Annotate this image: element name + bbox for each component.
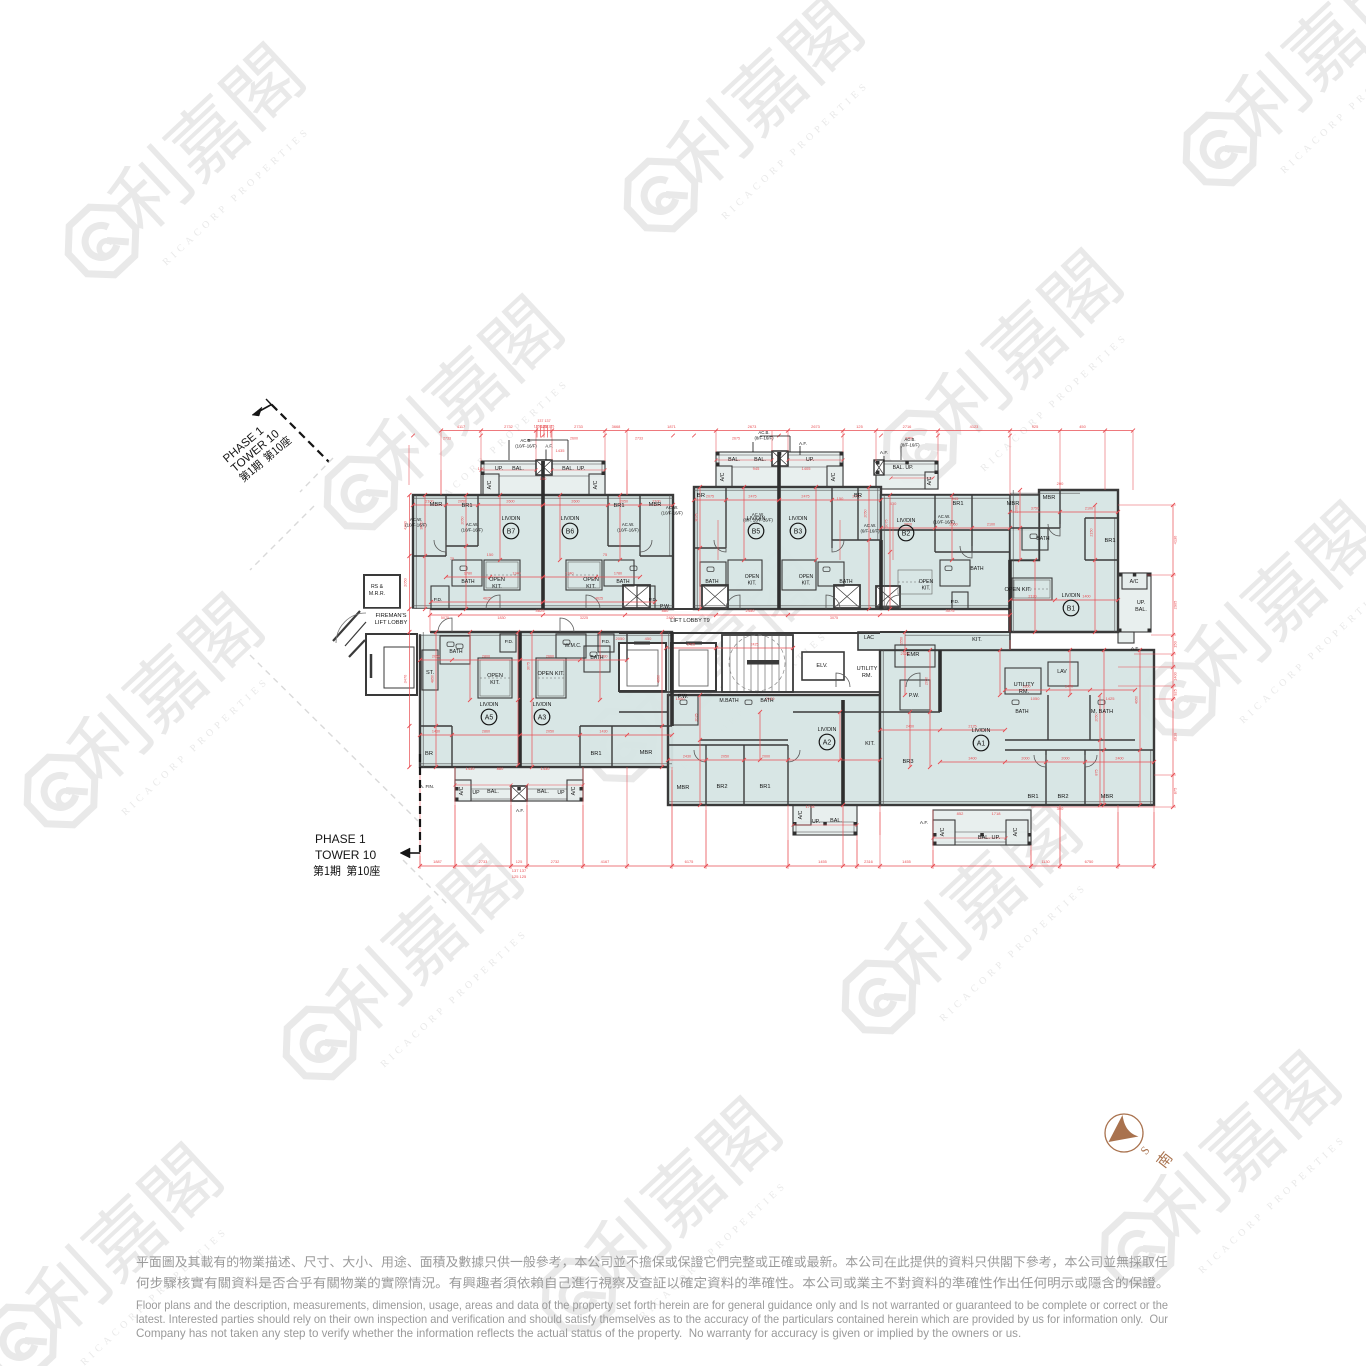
svg-text:(6/F-16/F): (6/F-16/F)	[860, 529, 880, 534]
svg-text:300: 300	[1057, 806, 1064, 811]
svg-text:137 137: 137 137	[537, 419, 550, 423]
svg-text:4117: 4117	[457, 424, 465, 429]
svg-text:P.D.: P.D.	[951, 599, 960, 605]
svg-text:BATH: BATH	[839, 579, 853, 585]
svg-text:P.W.: P.W.	[678, 694, 688, 700]
svg-text:ST.: ST.	[426, 670, 435, 676]
svg-text:AC.B.: AC.B.	[904, 437, 915, 442]
svg-text:B2: B2	[902, 531, 911, 538]
svg-text:1718: 1718	[806, 804, 816, 809]
svg-text:MBR: MBR	[1101, 794, 1114, 800]
svg-text:BR: BR	[697, 493, 705, 499]
svg-text:A.F.: A.F.	[920, 820, 928, 826]
svg-text:880: 880	[497, 766, 504, 771]
svg-text:2600: 2600	[571, 500, 579, 504]
svg-text:1780: 1780	[614, 572, 622, 576]
svg-text:BATH: BATH	[760, 698, 774, 704]
svg-text:150: 150	[837, 496, 844, 501]
svg-text:1050: 1050	[1031, 696, 1041, 701]
svg-text:2733: 2733	[443, 437, 451, 441]
svg-text:125: 125	[856, 424, 863, 429]
svg-text:1830: 1830	[497, 616, 505, 620]
svg-text:1400: 1400	[1082, 595, 1090, 599]
svg-text:6750: 6750	[1085, 859, 1094, 864]
svg-text:1435: 1435	[556, 448, 566, 453]
svg-text:200: 200	[1057, 481, 1064, 486]
svg-text:BAL.: BAL.	[728, 457, 740, 463]
svg-text:4950: 4950	[1134, 696, 1138, 704]
svg-text:BAL.: BAL.	[487, 789, 499, 795]
svg-text:1130: 1130	[1041, 859, 1050, 864]
svg-text:1430: 1430	[466, 766, 476, 771]
svg-text:4625: 4625	[483, 597, 491, 601]
svg-text:3470: 3470	[402, 674, 407, 683]
svg-text:UP.: UP.	[806, 457, 814, 463]
svg-text:2100: 2100	[1085, 507, 1093, 511]
svg-text:2430: 2430	[683, 755, 691, 759]
svg-text:UP.: UP.	[1137, 600, 1145, 606]
svg-text:A/C: A/C	[720, 472, 726, 481]
svg-text:125 125 125: 125 125 125	[534, 425, 555, 429]
svg-text:450: 450	[645, 636, 652, 641]
svg-text:A. FIN.: A. FIN.	[420, 784, 434, 789]
svg-text:BAL.: BAL.	[537, 789, 549, 795]
svg-text:4167: 4167	[601, 859, 610, 864]
svg-text:A/C: A/C	[593, 480, 599, 489]
svg-text:(10/F-16/F): (10/F-16/F)	[661, 511, 683, 516]
svg-text:1400: 1400	[1173, 671, 1178, 680]
svg-text:1425: 1425	[1106, 696, 1116, 701]
svg-text:137 137: 137 137	[512, 868, 527, 873]
svg-text:BR2: BR2	[1057, 794, 1068, 800]
svg-text:A.F.: A.F.	[545, 444, 552, 449]
svg-text:LIV/DIN: LIV/DIN	[897, 518, 916, 524]
svg-text:2316: 2316	[864, 859, 873, 864]
svg-text:2673: 2673	[748, 424, 757, 429]
svg-text:450: 450	[1079, 424, 1086, 429]
svg-text:2905: 2905	[1173, 601, 1178, 610]
svg-text:UP: UP	[472, 790, 480, 796]
svg-text:BAL.: BAL.	[512, 466, 524, 472]
svg-text:2050: 2050	[616, 636, 626, 641]
svg-text:2716: 2716	[903, 424, 912, 429]
svg-text:3668: 3668	[612, 424, 621, 429]
svg-text:LIV/DIN: LIV/DIN	[480, 702, 499, 708]
svg-text:LIV/DIN: LIV/DIN	[818, 727, 837, 733]
svg-text:925: 925	[1032, 424, 1039, 429]
svg-text:1405: 1405	[802, 466, 812, 471]
svg-text:P.D.: P.D.	[434, 597, 443, 603]
svg-text:BATH: BATH	[705, 579, 719, 585]
svg-text:BATH: BATH	[1015, 709, 1029, 715]
svg-text:3075: 3075	[884, 519, 888, 527]
svg-text:OPEN: OPEN	[799, 574, 814, 580]
svg-text:AC.W.: AC.W.	[466, 522, 478, 527]
svg-text:OPEN: OPEN	[489, 577, 505, 583]
svg-text:1455: 1455	[902, 859, 911, 864]
svg-text:2660: 2660	[546, 655, 554, 659]
svg-text:2475: 2475	[801, 495, 809, 499]
svg-text:OPEN KIT.: OPEN KIT.	[1004, 587, 1031, 593]
svg-text:430: 430	[890, 501, 897, 506]
svg-text:BAL.: BAL.	[830, 818, 842, 824]
svg-text:A5: A5	[485, 715, 494, 722]
svg-text:1455: 1455	[818, 859, 827, 864]
svg-text:MBR: MBR	[1043, 495, 1056, 501]
svg-text:4850: 4850	[656, 675, 660, 683]
svg-text:KIT.: KIT.	[586, 584, 596, 590]
svg-text:2130: 2130	[1028, 595, 1036, 599]
svg-text:AC.B.: AC.B.	[758, 430, 769, 435]
svg-text:BATH: BATH	[461, 579, 475, 585]
svg-text:A3: A3	[538, 715, 547, 722]
svg-text:1340: 1340	[565, 572, 573, 576]
svg-text:125: 125	[516, 859, 523, 864]
svg-text:P.D.: P.D.	[505, 639, 514, 645]
svg-text:(8/F-16/F): (8/F-16/F)	[900, 443, 920, 448]
svg-text:2425: 2425	[687, 643, 695, 647]
svg-text:(10/F-16/F): (10/F-16/F)	[617, 528, 639, 533]
svg-text:2050: 2050	[460, 516, 464, 524]
svg-text:2050: 2050	[721, 755, 729, 759]
svg-text:OPEN: OPEN	[919, 579, 934, 585]
svg-text:TOWER 10: TOWER 10	[315, 848, 376, 862]
svg-text:KIT.: KIT.	[748, 581, 757, 587]
svg-text:BR3: BR3	[902, 759, 913, 765]
svg-text:RS &: RS &	[371, 584, 384, 590]
svg-text:KIT.: KIT.	[972, 637, 982, 643]
svg-text:2100: 2100	[987, 523, 995, 527]
svg-text:1550: 1550	[900, 637, 904, 645]
svg-text:P.D.: P.D.	[602, 639, 611, 645]
svg-text:1430: 1430	[541, 766, 551, 771]
svg-text:KIT.: KIT.	[802, 581, 811, 587]
svg-text:PHASE 1: PHASE 1	[315, 832, 366, 846]
svg-text:OPEN KIT.: OPEN KIT.	[537, 671, 564, 677]
svg-text:BATH: BATH	[1036, 536, 1050, 542]
svg-text:A.F.: A.F.	[1131, 646, 1139, 652]
svg-text:2732: 2732	[504, 424, 513, 429]
svg-text:1871: 1871	[667, 424, 676, 429]
svg-text:150: 150	[1173, 640, 1178, 647]
svg-text:A/C: A/C	[459, 786, 465, 795]
svg-text:4625: 4625	[595, 597, 603, 601]
svg-text:B3: B3	[794, 529, 803, 536]
svg-text:2732: 2732	[551, 859, 560, 864]
svg-text:3618: 3618	[1173, 733, 1178, 742]
svg-text:KIT.: KIT.	[922, 586, 931, 592]
svg-text:1780: 1780	[464, 572, 472, 576]
svg-text:BR1: BR1	[1027, 794, 1038, 800]
svg-text:LIV/DIN: LIV/DIN	[972, 728, 991, 734]
svg-text:A/C: A/C	[1130, 579, 1139, 585]
svg-text:LAV: LAV	[1057, 669, 1067, 675]
svg-text:945: 945	[753, 466, 760, 471]
svg-text:AC.B.: AC.B.	[520, 438, 531, 443]
svg-text:2000: 2000	[924, 677, 928, 685]
svg-text:P.W.: P.W.	[660, 604, 670, 610]
svg-text:2050: 2050	[863, 509, 867, 517]
svg-text:3750: 3750	[1031, 507, 1039, 511]
svg-text:3025: 3025	[694, 513, 698, 521]
svg-text:BAL. UP.: BAL. UP.	[893, 465, 914, 471]
svg-text:1887: 1887	[433, 859, 442, 864]
svg-text:1430: 1430	[599, 730, 607, 734]
svg-text:KIT.: KIT.	[490, 680, 500, 686]
svg-text:M.BATH: M.BATH	[719, 698, 738, 704]
svg-text:UP.: UP.	[577, 466, 585, 472]
svg-text:LIFT LOBBY: LIFT LOBBY	[375, 620, 408, 626]
svg-text:925: 925	[1173, 689, 1178, 696]
svg-text:BR2: BR2	[716, 784, 727, 790]
svg-text:2025: 2025	[694, 713, 698, 721]
svg-text:UP: UP	[557, 790, 565, 796]
svg-text:S: S	[1137, 1143, 1152, 1157]
svg-text:LIV/DIN: LIV/DIN	[502, 516, 521, 522]
svg-text:B6: B6	[566, 529, 575, 536]
svg-text:A1: A1	[977, 741, 986, 748]
svg-text:125 125: 125 125	[512, 874, 527, 879]
svg-text:LIV/DIN: LIV/DIN	[1062, 593, 1081, 599]
svg-text:P.D.: P.D.	[649, 597, 658, 603]
svg-text:A/C: A/C	[927, 476, 933, 485]
svg-text:B5: B5	[752, 529, 761, 536]
svg-text:2000: 2000	[1061, 757, 1069, 761]
svg-text:2675: 2675	[732, 437, 740, 441]
svg-text:A/C: A/C	[1013, 827, 1019, 836]
svg-text:875: 875	[1094, 769, 1098, 775]
svg-text:(10/F-16/F): (10/F-16/F)	[461, 528, 483, 533]
svg-text:A/C: A/C	[571, 786, 577, 795]
svg-text:BATH: BATH	[970, 566, 984, 572]
svg-text:UP.: UP.	[495, 466, 503, 472]
svg-text:4625: 4625	[536, 608, 546, 613]
svg-text:A/C: A/C	[798, 810, 804, 819]
svg-text:2000: 2000	[762, 755, 770, 759]
svg-text:BR1: BR1	[759, 784, 770, 790]
svg-text:LIV/DIN: LIV/DIN	[561, 516, 580, 522]
svg-text:BAL.: BAL.	[1135, 607, 1147, 613]
svg-text:P.W.: P.W.	[909, 693, 919, 699]
svg-text:3400: 3400	[968, 757, 976, 761]
svg-text:UTILITY: UTILITY	[857, 666, 878, 672]
svg-text:1340: 1340	[512, 572, 520, 576]
svg-text:LIV/DIN: LIV/DIN	[533, 702, 552, 708]
svg-text:BR1: BR1	[461, 503, 472, 509]
svg-text:852: 852	[957, 811, 964, 816]
svg-text:LAC: LAC	[864, 635, 874, 641]
svg-text:4123: 4123	[970, 424, 979, 429]
svg-text:UTILITY: UTILITY	[1014, 682, 1035, 688]
svg-text:2600: 2600	[570, 437, 578, 441]
svg-text:BAL.: BAL.	[754, 457, 766, 463]
svg-text:ELV.: ELV.	[816, 663, 828, 669]
svg-text:BAL.: BAL.	[562, 466, 574, 472]
svg-text:2600: 2600	[506, 500, 514, 504]
svg-text:(10/F-16/F): (10/F-16/F)	[405, 523, 427, 528]
svg-text:2450: 2450	[746, 608, 756, 613]
svg-text:BAL. UP.: BAL. UP.	[978, 835, 1001, 841]
svg-text:150: 150	[540, 476, 547, 481]
svg-text:A/C: A/C	[831, 472, 837, 481]
svg-text:W.M.C.: W.M.C.	[564, 643, 581, 649]
svg-text:MBR: MBR	[1007, 501, 1020, 507]
svg-text:A.F.: A.F.	[516, 808, 524, 813]
svg-text:BATH: BATH	[590, 655, 604, 661]
svg-text:4850: 4850	[430, 675, 434, 683]
svg-text:1470: 1470	[1065, 685, 1073, 689]
svg-text:MBR: MBR	[640, 750, 653, 756]
svg-text:B7: B7	[507, 529, 516, 536]
svg-text:2733: 2733	[574, 424, 583, 429]
svg-text:6175: 6175	[685, 859, 694, 864]
svg-text:75: 75	[450, 556, 455, 561]
svg-text:EMR: EMR	[907, 652, 920, 658]
svg-text:A/C: A/C	[487, 480, 493, 489]
svg-text:150: 150	[487, 552, 494, 557]
svg-text:BR1: BR1	[952, 501, 963, 507]
svg-text:BR1: BR1	[1104, 538, 1115, 544]
svg-text:AC.W.: AC.W.	[410, 517, 422, 522]
svg-text:A.F.: A.F.	[799, 441, 807, 446]
svg-text:LIFT LOBBY T9: LIFT LOBBY T9	[670, 618, 710, 624]
svg-text:BATH: BATH	[616, 579, 630, 585]
svg-text:OPEN: OPEN	[487, 673, 503, 679]
svg-text:2075: 2075	[706, 495, 714, 499]
svg-text:MBR: MBR	[649, 502, 662, 508]
svg-text:AC.W.: AC.W.	[622, 522, 634, 527]
svg-text:A.F.: A.F.	[880, 450, 888, 456]
svg-text:2050: 2050	[546, 730, 554, 734]
svg-text:M.R.R.: M.R.R.	[369, 591, 385, 597]
svg-text:B1: B1	[1067, 606, 1076, 613]
svg-text:MBR: MBR	[430, 502, 443, 508]
svg-text:KIT.: KIT.	[865, 741, 875, 747]
svg-text:BR1: BR1	[613, 503, 624, 509]
svg-text:OPEN: OPEN	[583, 577, 599, 583]
svg-text:BR: BR	[425, 751, 433, 757]
svg-text:AC.W.: AC.W.	[938, 514, 950, 519]
svg-text:2475: 2475	[748, 495, 756, 499]
svg-text:(10/F-16/F): (10/F-16/F)	[933, 520, 955, 525]
svg-text:2673: 2673	[811, 424, 820, 429]
svg-text:LIV/DIN: LIV/DIN	[789, 516, 808, 522]
svg-text:BR: BR	[854, 493, 862, 499]
svg-text:AC.W.: AC.W.	[864, 523, 876, 528]
svg-text:5075: 5075	[441, 616, 449, 620]
svg-text:KIT.: KIT.	[492, 584, 502, 590]
svg-text:2050: 2050	[402, 577, 407, 586]
svg-text:BR1: BR1	[590, 751, 601, 757]
svg-text:2000: 2000	[1021, 757, 1029, 761]
svg-text:RM.: RM.	[862, 673, 873, 679]
svg-text:2733: 2733	[635, 437, 643, 441]
svg-text:2800: 2800	[482, 655, 490, 659]
svg-text:1718: 1718	[992, 811, 1002, 816]
svg-text:2425: 2425	[751, 643, 759, 647]
svg-text:875: 875	[1173, 788, 1178, 795]
svg-text:BATH: BATH	[449, 649, 463, 655]
svg-text:UP.: UP.	[812, 819, 820, 825]
svg-text:2733: 2733	[479, 859, 488, 864]
svg-text:3075: 3075	[830, 616, 838, 620]
svg-text:M. BATH: M. BATH	[1091, 709, 1113, 715]
svg-text:AC.W.: AC.W.	[666, 505, 678, 510]
svg-text:2150: 2150	[1089, 528, 1093, 536]
svg-text:75: 75	[603, 552, 608, 557]
svg-text:3075: 3075	[526, 662, 530, 670]
svg-text:OPEN: OPEN	[745, 574, 760, 580]
svg-text:FIREMAN'S: FIREMAN'S	[375, 613, 406, 619]
svg-text:4130: 4130	[1173, 535, 1178, 544]
svg-text:2400: 2400	[1115, 757, 1123, 761]
svg-text:2860: 2860	[482, 730, 490, 734]
svg-text:(10/F-16/F): (10/F-16/F)	[515, 444, 537, 449]
svg-text:RM.: RM.	[1019, 689, 1030, 695]
svg-text:3225: 3225	[580, 616, 588, 620]
svg-text:A/C: A/C	[940, 827, 946, 836]
svg-text:LIV/DIN: LIV/DIN	[747, 516, 766, 522]
svg-text:A2: A2	[823, 740, 832, 747]
svg-text:MBR: MBR	[677, 785, 690, 791]
svg-text:3075: 3075	[946, 608, 956, 613]
